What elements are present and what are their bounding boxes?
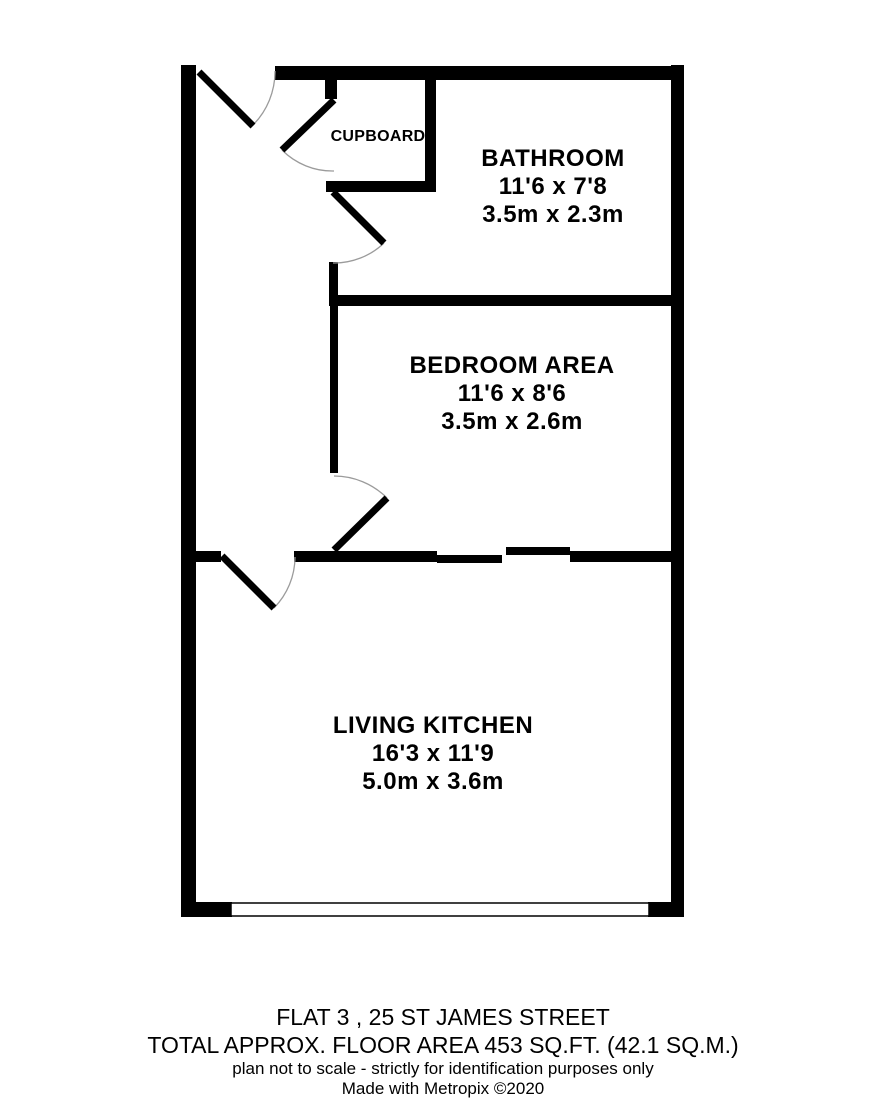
- bedroom-wall-left: [330, 306, 338, 473]
- room-name: BEDROOM AREA: [409, 352, 614, 380]
- wall-bottom-left: [181, 902, 232, 917]
- room-dims-imperial: 11'6 x 8'6: [409, 380, 614, 408]
- room-dims-metric: 3.5m x 2.3m: [481, 201, 625, 229]
- room-name: CUPBOARD: [331, 128, 426, 146]
- room-dims-metric: 5.0m x 3.6m: [333, 768, 533, 796]
- partition-offset-upper: [506, 547, 570, 555]
- caption: FLAT 3 , 25 ST JAMES STREET TOTAL APPROX…: [0, 1003, 886, 1099]
- cupboard-door-arc: [282, 150, 334, 171]
- cupboard-wall-bottom: [326, 181, 436, 192]
- bathroom-door-leaf: [333, 192, 384, 243]
- caption-address: FLAT 3 , 25 ST JAMES STREET: [0, 1003, 886, 1031]
- wall-right: [671, 65, 684, 917]
- cupboard-wall-right: [425, 78, 436, 191]
- bathroom-door-arc: [333, 243, 384, 263]
- living-door-leaf: [222, 556, 274, 608]
- living-door-arc: [274, 557, 295, 608]
- bedroom-door-arc: [334, 476, 387, 498]
- wall-left: [181, 65, 196, 917]
- entrance-door-arc: [253, 71, 275, 125]
- wall-bottom-right: [648, 902, 684, 917]
- cupboard-door-leaf: [282, 100, 334, 150]
- room-label-living: LIVING KITCHEN 16'3 x 11'9 5.0m x 3.6m: [333, 712, 533, 796]
- caption-floor-area: TOTAL APPROX. FLOOR AREA 453 SQ.FT. (42.…: [0, 1031, 886, 1059]
- caption-credit: Made with Metropix ©2020: [0, 1079, 886, 1099]
- floorplan-canvas: CUPBOARD BATHROOM 11'6 x 7'8 3.5m x 2.3m…: [0, 0, 886, 1105]
- room-name: LIVING KITCHEN: [333, 712, 533, 740]
- wall-top: [275, 66, 684, 80]
- room-label-bedroom: BEDROOM AREA 11'6 x 8'6 3.5m x 2.6m: [409, 352, 614, 436]
- room-dims-metric: 3.5m x 2.6m: [409, 408, 614, 436]
- room-label-bathroom: BATHROOM 11'6 x 7'8 3.5m x 2.3m: [481, 145, 625, 229]
- room-name: BATHROOM: [481, 145, 625, 173]
- cupboard-wall-stub: [325, 78, 337, 99]
- entrance-door-leaf: [199, 72, 253, 126]
- wall-bathroom-bedroom-divider: [329, 295, 671, 306]
- partition-offset-lower: [437, 555, 502, 563]
- living-wall-stub-left: [196, 551, 221, 562]
- room-dims-imperial: 16'3 x 11'9: [333, 740, 533, 768]
- living-wall-right: [570, 551, 671, 562]
- bedroom-door-leaf: [334, 498, 387, 550]
- window: [231, 903, 649, 916]
- floorplan-drawing: [0, 0, 886, 1105]
- caption-disclaimer: plan not to scale - strictly for identif…: [0, 1059, 886, 1079]
- living-wall-mid: [294, 551, 437, 562]
- room-dims-imperial: 11'6 x 7'8: [481, 173, 625, 201]
- room-label-cupboard: CUPBOARD: [331, 128, 426, 146]
